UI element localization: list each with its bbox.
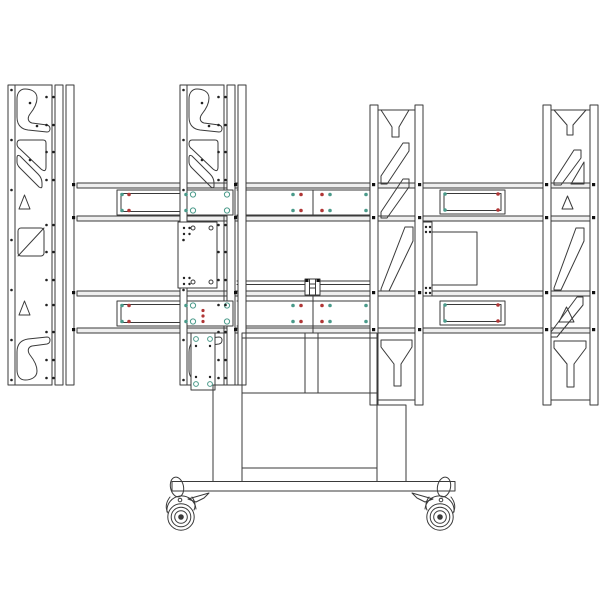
vesa-column-left-outer — [8, 85, 74, 385]
video-wall-cart-drawing — [0, 0, 600, 600]
v-notch-cutout — [554, 110, 586, 135]
vesa-column-right-outer — [543, 105, 598, 405]
diagonal-brace-cutout — [554, 150, 581, 185]
triangle-cutout — [19, 301, 30, 315]
left-leg — [213, 385, 242, 482]
center-clamp-bracket — [305, 279, 320, 295]
vesa-column-right-inner — [370, 105, 423, 405]
caster-right — [412, 476, 455, 530]
diagonal-brace-cutout — [381, 143, 409, 184]
gusset-cutout — [17, 140, 46, 171]
vesa-column-left-inner — [178, 85, 246, 390]
triangle-cutout — [559, 307, 574, 322]
technical-drawing-canvas — [0, 0, 600, 600]
drawing-root — [8, 85, 598, 530]
caster-left — [166, 476, 209, 530]
pedestal-cabinet-bottom — [242, 393, 377, 468]
brake-lever — [188, 493, 209, 502]
mounting-plate-lower — [191, 333, 215, 390]
side-plate-right — [432, 232, 477, 285]
diagonal-brace-cutout — [554, 228, 584, 290]
triangle-cutout — [19, 195, 30, 209]
right-leg — [377, 405, 406, 482]
hook-slot-cutout — [17, 337, 50, 380]
gusset-cutout — [189, 140, 218, 171]
funnel-cutout — [381, 340, 412, 386]
vesa-plate-top — [187, 190, 233, 215]
diagonal-brace-cutout — [381, 227, 413, 291]
bottom-crossbar-rail — [77, 291, 598, 333]
hook-slot-cutout — [17, 89, 50, 132]
corner-triangle-cutout — [571, 162, 584, 184]
pedestal-cabinet-top — [242, 333, 377, 393]
funnel-cutout — [554, 341, 586, 387]
hook-slot-cutout — [189, 89, 222, 132]
top-crossbar-rail — [77, 183, 598, 221]
dotted-strip-right — [423, 222, 432, 296]
base-frame — [172, 482, 455, 492]
triangle-cutout — [562, 196, 573, 209]
v-notch-cutout — [381, 110, 409, 137]
center-crossbar — [237, 281, 370, 285]
